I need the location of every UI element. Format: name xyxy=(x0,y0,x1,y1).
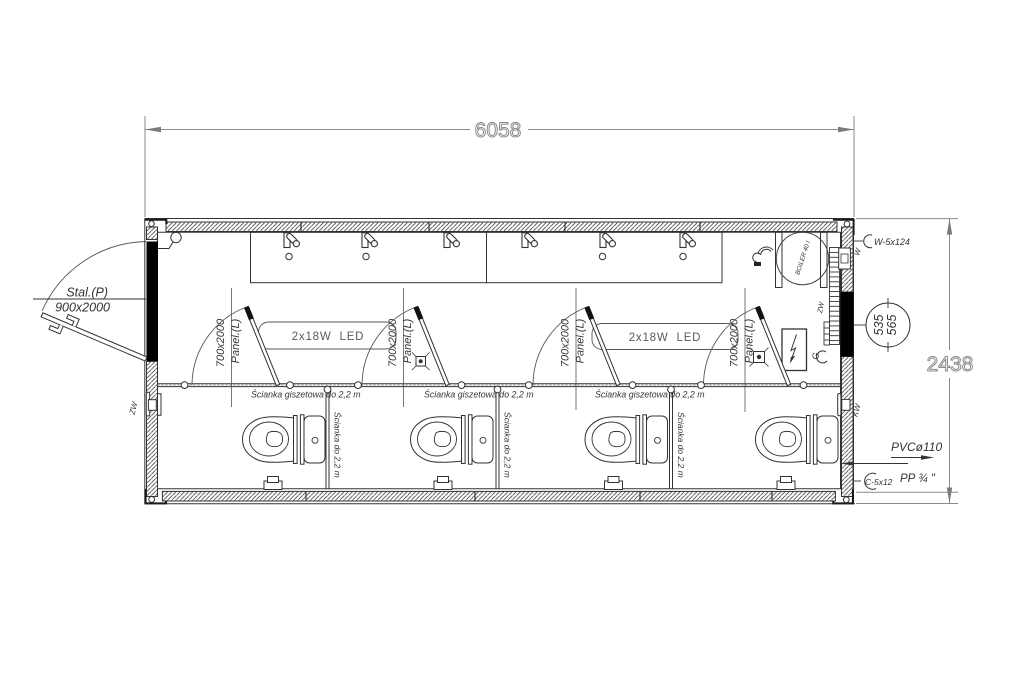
svg-text:6058: 6058 xyxy=(475,119,522,142)
svg-text:PVCø110: PVCø110 xyxy=(891,440,942,454)
svg-text:Ścianka giszetowa do 2,2 m: Ścianka giszetowa do 2,2 m xyxy=(251,389,361,400)
svg-text:700x2000: 700x2000 xyxy=(387,318,399,367)
svg-text:2x18W LED: 2x18W LED xyxy=(292,331,365,343)
svg-text:535: 535 xyxy=(872,315,886,336)
svg-text:C-5x12: C-5x12 xyxy=(865,477,893,487)
svg-text:Panel.(L): Panel.(L) xyxy=(230,318,242,363)
svg-text:Ścianka do 2,2 m: Ścianka do 2,2 m xyxy=(333,412,344,478)
svg-text:2438: 2438 xyxy=(927,353,974,376)
svg-text:Ścianka do 2,2 m: Ścianka do 2,2 m xyxy=(503,412,514,478)
svg-text:Ścianka do 2,2 m: Ścianka do 2,2 m xyxy=(676,412,687,478)
svg-text:W-5x124: W-5x124 xyxy=(874,237,910,247)
svg-text:Panel.(L): Panel.(L) xyxy=(575,318,587,363)
svg-text:Ścianka giszetowa do 2,2 m: Ścianka giszetowa do 2,2 m xyxy=(595,389,705,400)
svg-text:PP ¾ ": PP ¾ " xyxy=(900,473,936,485)
svg-text:Ścianka giszetowa do 2,2 m: Ścianka giszetowa do 2,2 m xyxy=(424,389,534,400)
svg-text:2x18W LED: 2x18W LED xyxy=(629,332,702,344)
svg-text:700x2000: 700x2000 xyxy=(729,318,741,367)
svg-text:700x2000: 700x2000 xyxy=(560,318,572,367)
svg-text:Stal.(P): Stal.(P) xyxy=(66,286,108,300)
svg-text:565: 565 xyxy=(885,315,899,336)
svg-text:Panel.(L): Panel.(L) xyxy=(402,318,414,363)
svg-text:900x2000: 900x2000 xyxy=(55,301,110,315)
